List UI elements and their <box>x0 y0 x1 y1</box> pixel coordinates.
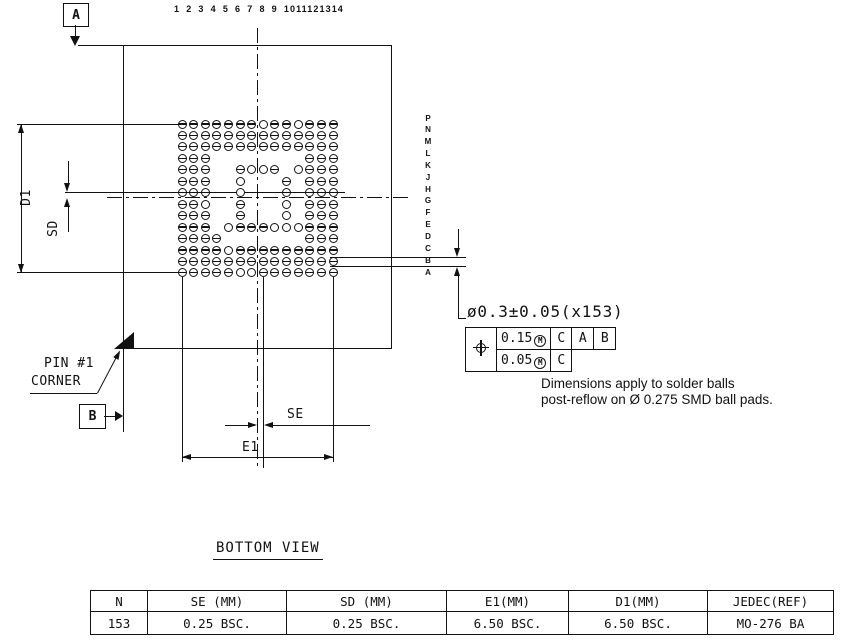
d1-extension-bottom <box>17 272 182 273</box>
solder-ball <box>178 165 187 174</box>
solder-ball <box>317 211 326 220</box>
e1-dimension-line <box>182 457 333 458</box>
datum-a-label: A <box>72 8 80 23</box>
solder-ball <box>178 257 187 266</box>
datum-b-box: B <box>79 404 106 429</box>
pin1-leader-arrow-icon <box>113 349 123 360</box>
table-value-row: 153 0.25 BSC. 0.25 BSC. 6.50 BSC. 6.50 B… <box>91 612 834 635</box>
column-numbers: 1 2 3 4 5 6 7 8 9 1011121314 <box>174 4 344 14</box>
solder-ball <box>329 211 338 220</box>
solder-ball <box>247 131 256 140</box>
solder-ball <box>282 177 291 186</box>
row-letter: C <box>420 244 436 253</box>
solder-ball <box>329 200 338 209</box>
sd-arrow-down-icon <box>64 183 70 192</box>
solder-ball <box>189 177 198 186</box>
solder-ball <box>224 223 233 232</box>
solder-ball <box>329 246 338 255</box>
solder-ball <box>212 120 221 129</box>
solder-ball <box>224 142 233 151</box>
position-tolerance-icon <box>473 340 489 356</box>
solder-ball <box>247 165 256 174</box>
solder-ball <box>178 246 187 255</box>
solder-ball <box>317 246 326 255</box>
solder-ball <box>212 246 221 255</box>
solder-ball <box>259 223 268 232</box>
solder-ball <box>282 268 291 277</box>
solder-ball <box>282 142 291 151</box>
header-cell-e1: E1(MM) <box>447 591 569 612</box>
header-cell-n: N <box>91 591 148 612</box>
datum-ref-c1: C <box>551 328 572 350</box>
solder-ball <box>259 165 268 174</box>
ball-dia-line-top <box>330 257 466 258</box>
solder-ball <box>247 223 256 232</box>
solder-ball <box>317 177 326 186</box>
tolerance-value-2: 0.05M <box>497 350 551 372</box>
note-line-1: Dimensions apply to solder balls <box>541 376 773 392</box>
mmc-modifier-icon: M <box>534 335 546 347</box>
row-letter: N <box>420 125 436 134</box>
solder-ball <box>305 142 314 151</box>
solder-ball <box>212 131 221 140</box>
solder-ball <box>201 154 210 163</box>
value-cell-e1: 6.50 BSC. <box>447 612 569 635</box>
table-header-row: N SE (MM) SD (MM) E1(MM) D1(MM) JEDEC(RE… <box>91 591 834 612</box>
solder-ball <box>236 120 245 129</box>
ball-dia-arrow-down-icon <box>454 248 460 257</box>
solder-ball <box>294 131 303 140</box>
solder-ball <box>282 120 291 129</box>
solder-ball <box>259 142 268 151</box>
solder-ball <box>236 177 245 186</box>
ball-dia-leader-foot <box>458 318 466 319</box>
solder-ball <box>329 154 338 163</box>
solder-ball <box>189 211 198 220</box>
solder-ball <box>317 200 326 209</box>
solder-ball <box>305 177 314 186</box>
pin1-label-line1: PIN #1 <box>44 356 94 371</box>
solder-ball <box>201 246 210 255</box>
solder-ball <box>189 142 198 151</box>
e1-extension-right <box>333 277 334 462</box>
solder-ball <box>282 188 291 197</box>
ball-dia-arrow-up-icon <box>454 267 460 276</box>
se-dim-right <box>272 425 370 426</box>
solder-ball <box>189 131 198 140</box>
pin1-leader-underline <box>30 393 97 394</box>
row-letter: K <box>420 161 436 170</box>
solder-ball <box>270 131 279 140</box>
solder-ball <box>305 246 314 255</box>
solder-ball <box>236 223 245 232</box>
solder-ball <box>317 268 326 277</box>
solder-ball <box>178 142 187 151</box>
datum-ref-b: B <box>594 328 616 350</box>
row-letter: L <box>420 149 436 158</box>
solder-ball <box>224 257 233 266</box>
dim-label-sd: SD <box>46 220 61 237</box>
solder-ball <box>236 142 245 151</box>
solder-ball <box>212 257 221 266</box>
solder-ball <box>247 268 256 277</box>
row-letter: D <box>420 232 436 241</box>
solder-ball <box>189 246 198 255</box>
solder-ball <box>189 268 198 277</box>
solder-ball <box>317 120 326 129</box>
solder-ball <box>201 223 210 232</box>
value-cell-n: 153 <box>91 612 148 635</box>
row-letter: P <box>420 114 436 123</box>
header-cell-se: SE (MM) <box>148 591 287 612</box>
solder-ball <box>247 120 256 129</box>
solder-ball <box>329 177 338 186</box>
datum-b-extension <box>123 349 124 432</box>
solder-ball <box>178 234 187 243</box>
solder-ball <box>259 246 268 255</box>
datum-ref-a: A <box>572 328 594 350</box>
value-cell-jedec: MO-276 BA <box>708 612 834 635</box>
solder-ball <box>259 120 268 129</box>
solder-ball <box>329 131 338 140</box>
solder-ball <box>224 246 233 255</box>
solder-ball <box>305 200 314 209</box>
solder-ball <box>294 120 303 129</box>
solder-ball <box>329 120 338 129</box>
solder-ball <box>201 211 210 220</box>
solder-ball <box>305 120 314 129</box>
solder-ball <box>259 257 268 266</box>
solder-ball <box>329 165 338 174</box>
solder-ball <box>317 165 326 174</box>
solder-ball <box>201 142 210 151</box>
ball-dia-leader <box>458 275 459 318</box>
solder-ball <box>294 165 303 174</box>
solder-ball <box>317 234 326 243</box>
bga-bottom-view-drawing: A 1 2 3 4 5 6 7 8 9 1011121314 PNMLKJHGF… <box>0 0 850 640</box>
solder-ball <box>189 200 198 209</box>
solder-ball <box>178 120 187 129</box>
solder-ball <box>317 188 326 197</box>
vertical-centerline <box>257 28 258 470</box>
solder-ball <box>317 257 326 266</box>
dim-label-d1: D1 <box>19 189 34 206</box>
solder-ball <box>178 188 187 197</box>
row-letter: H <box>420 185 436 194</box>
solder-ball <box>189 188 198 197</box>
header-cell-jedec: JEDEC(REF) <box>708 591 834 612</box>
solder-ball <box>317 142 326 151</box>
tolerance-frame: 0.15M C A B 0.05M C <box>465 327 616 372</box>
solder-ball <box>317 154 326 163</box>
row-letter: M <box>420 137 436 146</box>
dim-label-se: SE <box>287 407 304 422</box>
solder-ball <box>294 142 303 151</box>
dimension-table: N SE (MM) SD (MM) E1(MM) D1(MM) JEDEC(RE… <box>90 590 834 635</box>
view-label: BOTTOM VIEW <box>213 540 323 560</box>
solder-ball <box>305 223 314 232</box>
solder-ball <box>189 154 198 163</box>
solder-ball <box>224 268 233 277</box>
solder-ball <box>178 131 187 140</box>
solder-ball <box>201 268 210 277</box>
solder-ball <box>236 268 245 277</box>
datum-b-label: B <box>89 409 97 424</box>
solder-ball <box>305 188 314 197</box>
solder-ball <box>224 131 233 140</box>
solder-ball <box>317 131 326 140</box>
header-cell-sd: SD (MM) <box>287 591 447 612</box>
ball-dia-line-bottom <box>330 266 466 267</box>
se-arrow-right-icon <box>248 422 257 428</box>
header-cell-d1: D1(MM) <box>569 591 708 612</box>
d1-extension-top <box>17 124 182 125</box>
pin1-label-line2: CORNER <box>31 374 81 389</box>
solder-ball <box>201 120 210 129</box>
solder-ball <box>224 120 233 129</box>
solder-ball <box>247 257 256 266</box>
solder-ball <box>201 257 210 266</box>
solder-ball <box>294 246 303 255</box>
solder-ball <box>270 268 279 277</box>
value-cell-se: 0.25 BSC. <box>148 612 287 635</box>
solder-ball <box>178 211 187 220</box>
solder-ball <box>247 142 256 151</box>
sd-arrow-up-icon <box>64 198 70 207</box>
solder-ball <box>305 165 314 174</box>
e1-arrow-right-icon <box>324 454 333 460</box>
package-outline-top <box>78 45 392 46</box>
solder-ball-note: Dimensions apply to solder balls post-re… <box>541 376 773 408</box>
solder-ball <box>294 268 303 277</box>
value-cell-sd: 0.25 BSC. <box>287 612 447 635</box>
e1-arrow-left-icon <box>182 454 191 460</box>
datum-a-leader <box>75 25 76 36</box>
solder-ball <box>201 188 210 197</box>
solder-ball <box>178 154 187 163</box>
solder-ball <box>212 268 221 277</box>
ball-dia-dim-upper <box>458 229 459 250</box>
row-letter: J <box>420 173 436 182</box>
datum-b-triangle-icon <box>115 411 123 421</box>
sd-arrow-line-upper <box>68 161 69 184</box>
sd-arrow-line-lower <box>68 206 69 232</box>
solder-ball <box>282 200 291 209</box>
se-extension-line <box>263 277 264 468</box>
solder-ball <box>282 257 291 266</box>
solder-ball <box>305 154 314 163</box>
solder-ball <box>305 211 314 220</box>
solder-ball <box>212 142 221 151</box>
solder-ball <box>236 211 245 220</box>
solder-ball <box>236 188 245 197</box>
solder-ball <box>212 234 221 243</box>
solder-ball <box>178 177 187 186</box>
solder-ball <box>329 223 338 232</box>
solder-ball <box>305 257 314 266</box>
solder-ball <box>201 131 210 140</box>
datum-ref-c2: C <box>551 350 572 372</box>
solder-ball <box>201 200 210 209</box>
solder-ball <box>282 246 291 255</box>
solder-ball <box>305 131 314 140</box>
e1-extension-left <box>182 277 183 462</box>
datum-a-box: A <box>63 3 89 27</box>
solder-ball <box>294 257 303 266</box>
mmc-modifier-icon: M <box>534 357 546 369</box>
solder-ball <box>236 165 245 174</box>
solder-ball <box>236 200 245 209</box>
note-line-2: post-reflow on Ø 0.275 SMD ball pads. <box>541 392 773 408</box>
dim-label-e1: E1 <box>242 440 259 455</box>
value-cell-d1: 6.50 BSC. <box>569 612 708 635</box>
solder-ball <box>189 234 198 243</box>
row-letter: A <box>420 268 436 277</box>
solder-ball <box>329 234 338 243</box>
solder-ball <box>270 246 279 255</box>
row-letter: E <box>420 220 436 229</box>
solder-ball <box>189 165 198 174</box>
ball-diameter-callout: ø0.3±0.05(x153) <box>467 302 624 321</box>
d1-arrow-up-icon <box>18 124 24 133</box>
datum-a-triangle-icon <box>70 36 80 46</box>
solder-ball <box>329 188 338 197</box>
solder-ball <box>270 223 279 232</box>
solder-ball <box>294 223 303 232</box>
solder-ball <box>329 142 338 151</box>
row-letter: G <box>420 196 436 205</box>
solder-ball <box>247 246 256 255</box>
solder-ball <box>189 120 198 129</box>
solder-ball <box>282 131 291 140</box>
solder-ball <box>236 246 245 255</box>
solder-ball <box>305 268 314 277</box>
position-tolerance-cell <box>466 328 497 372</box>
solder-ball <box>282 211 291 220</box>
solder-ball <box>305 234 314 243</box>
solder-ball <box>201 177 210 186</box>
solder-ball <box>189 223 198 232</box>
solder-ball <box>201 165 210 174</box>
horizontal-centerline <box>107 197 408 198</box>
solder-ball <box>270 120 279 129</box>
solder-ball <box>189 257 198 266</box>
solder-ball <box>236 257 245 266</box>
solder-ball <box>270 142 279 151</box>
solder-ball <box>270 165 279 174</box>
tolerance-value-1: 0.15M <box>497 328 551 350</box>
solder-ball <box>236 131 245 140</box>
solder-ball <box>270 257 279 266</box>
solder-ball <box>178 223 187 232</box>
solder-ball <box>259 131 268 140</box>
row-letter: F <box>420 208 436 217</box>
d1-arrow-down-icon <box>18 264 24 273</box>
solder-ball <box>282 223 291 232</box>
solder-ball <box>178 200 187 209</box>
solder-ball <box>317 223 326 232</box>
solder-ball <box>201 234 210 243</box>
solder-ball <box>329 257 338 266</box>
